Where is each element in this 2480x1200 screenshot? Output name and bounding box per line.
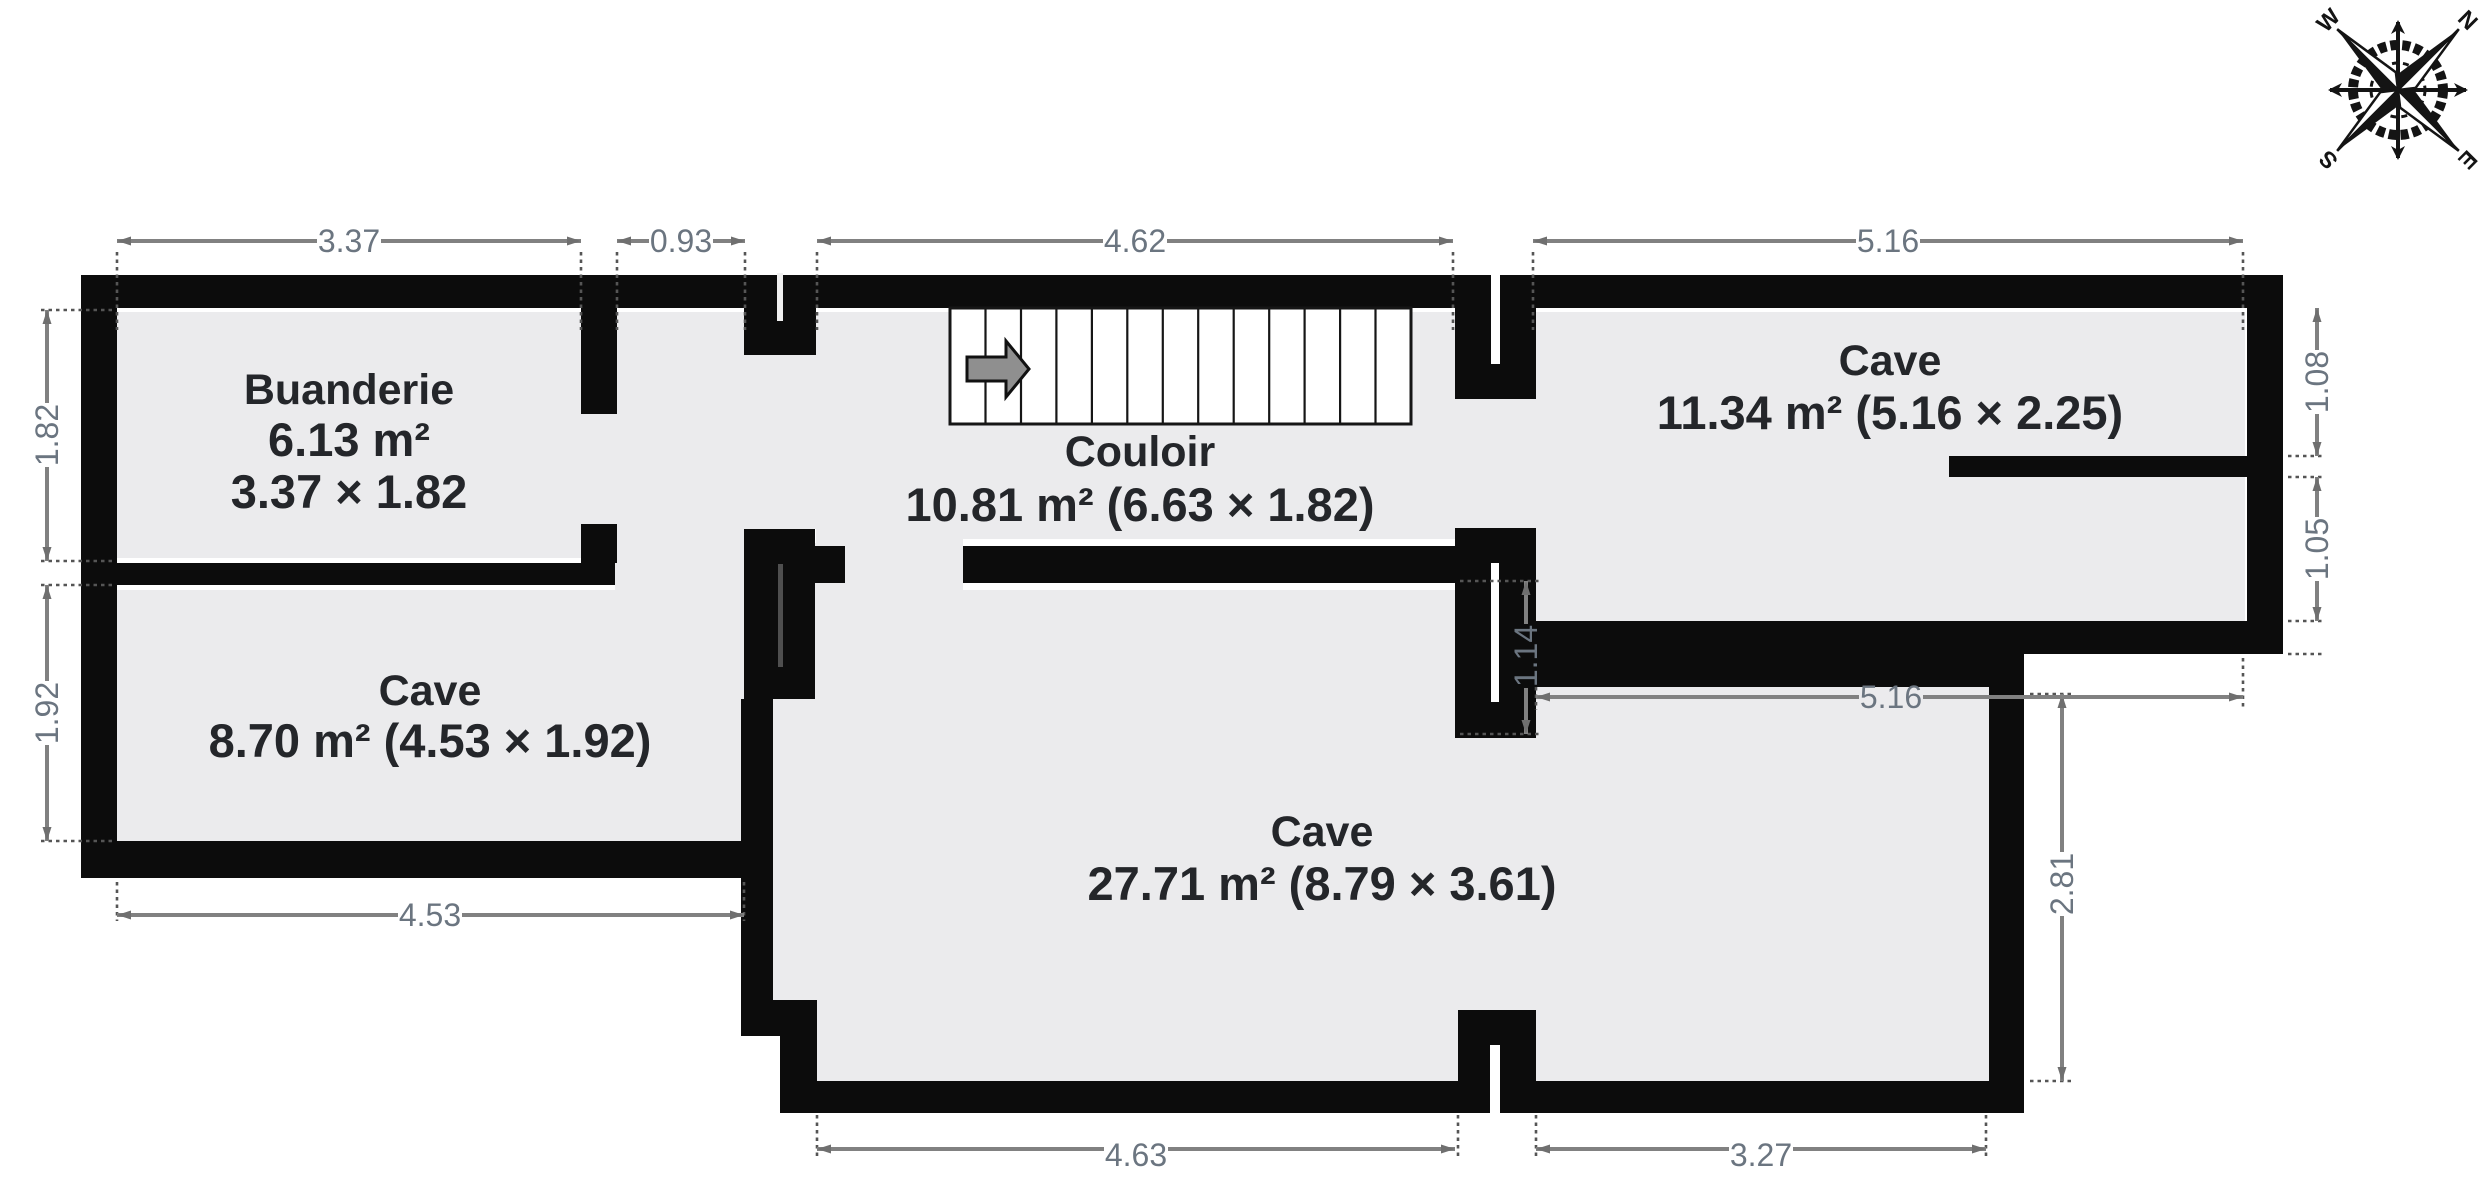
svg-text:4.62: 4.62 <box>1104 223 1166 259</box>
svg-text:27.71 m² (8.79 × 3.61): 27.71 m² (8.79 × 3.61) <box>1088 857 1557 910</box>
svg-text:0.93: 0.93 <box>650 223 712 259</box>
svg-text:3.27: 3.27 <box>1730 1137 1792 1173</box>
svg-text:5.16: 5.16 <box>1857 223 1919 259</box>
svg-text:5.16: 5.16 <box>1860 679 1922 715</box>
svg-text:6.13 m²: 6.13 m² <box>268 413 430 466</box>
svg-text:8.70 m² (4.53 × 1.92): 8.70 m² (4.53 × 1.92) <box>209 714 652 767</box>
svg-text:10.81 m² (6.63 × 1.82): 10.81 m² (6.63 × 1.82) <box>906 478 1375 531</box>
svg-text:1.05: 1.05 <box>2299 518 2335 580</box>
svg-text:Cave: Cave <box>1271 808 1374 856</box>
svg-text:Couloir: Couloir <box>1065 428 1216 476</box>
svg-text:3.37: 3.37 <box>318 223 380 259</box>
svg-text:3.37 × 1.82: 3.37 × 1.82 <box>231 465 468 518</box>
svg-text:Cave: Cave <box>1839 337 1942 385</box>
svg-text:1.08: 1.08 <box>2299 351 2335 413</box>
svg-text:4.63: 4.63 <box>1105 1137 1167 1173</box>
svg-text:2.81: 2.81 <box>2044 853 2080 915</box>
svg-text:11.34 m² (5.16 × 2.25): 11.34 m² (5.16 × 2.25) <box>1657 386 2123 439</box>
svg-text:1.82: 1.82 <box>29 404 65 466</box>
svg-text:Buanderie: Buanderie <box>244 366 454 414</box>
svg-text:1.92: 1.92 <box>29 682 65 744</box>
svg-text:1.14: 1.14 <box>1508 625 1544 687</box>
svg-text:4.53: 4.53 <box>399 897 461 933</box>
svg-text:Cave: Cave <box>379 667 482 715</box>
